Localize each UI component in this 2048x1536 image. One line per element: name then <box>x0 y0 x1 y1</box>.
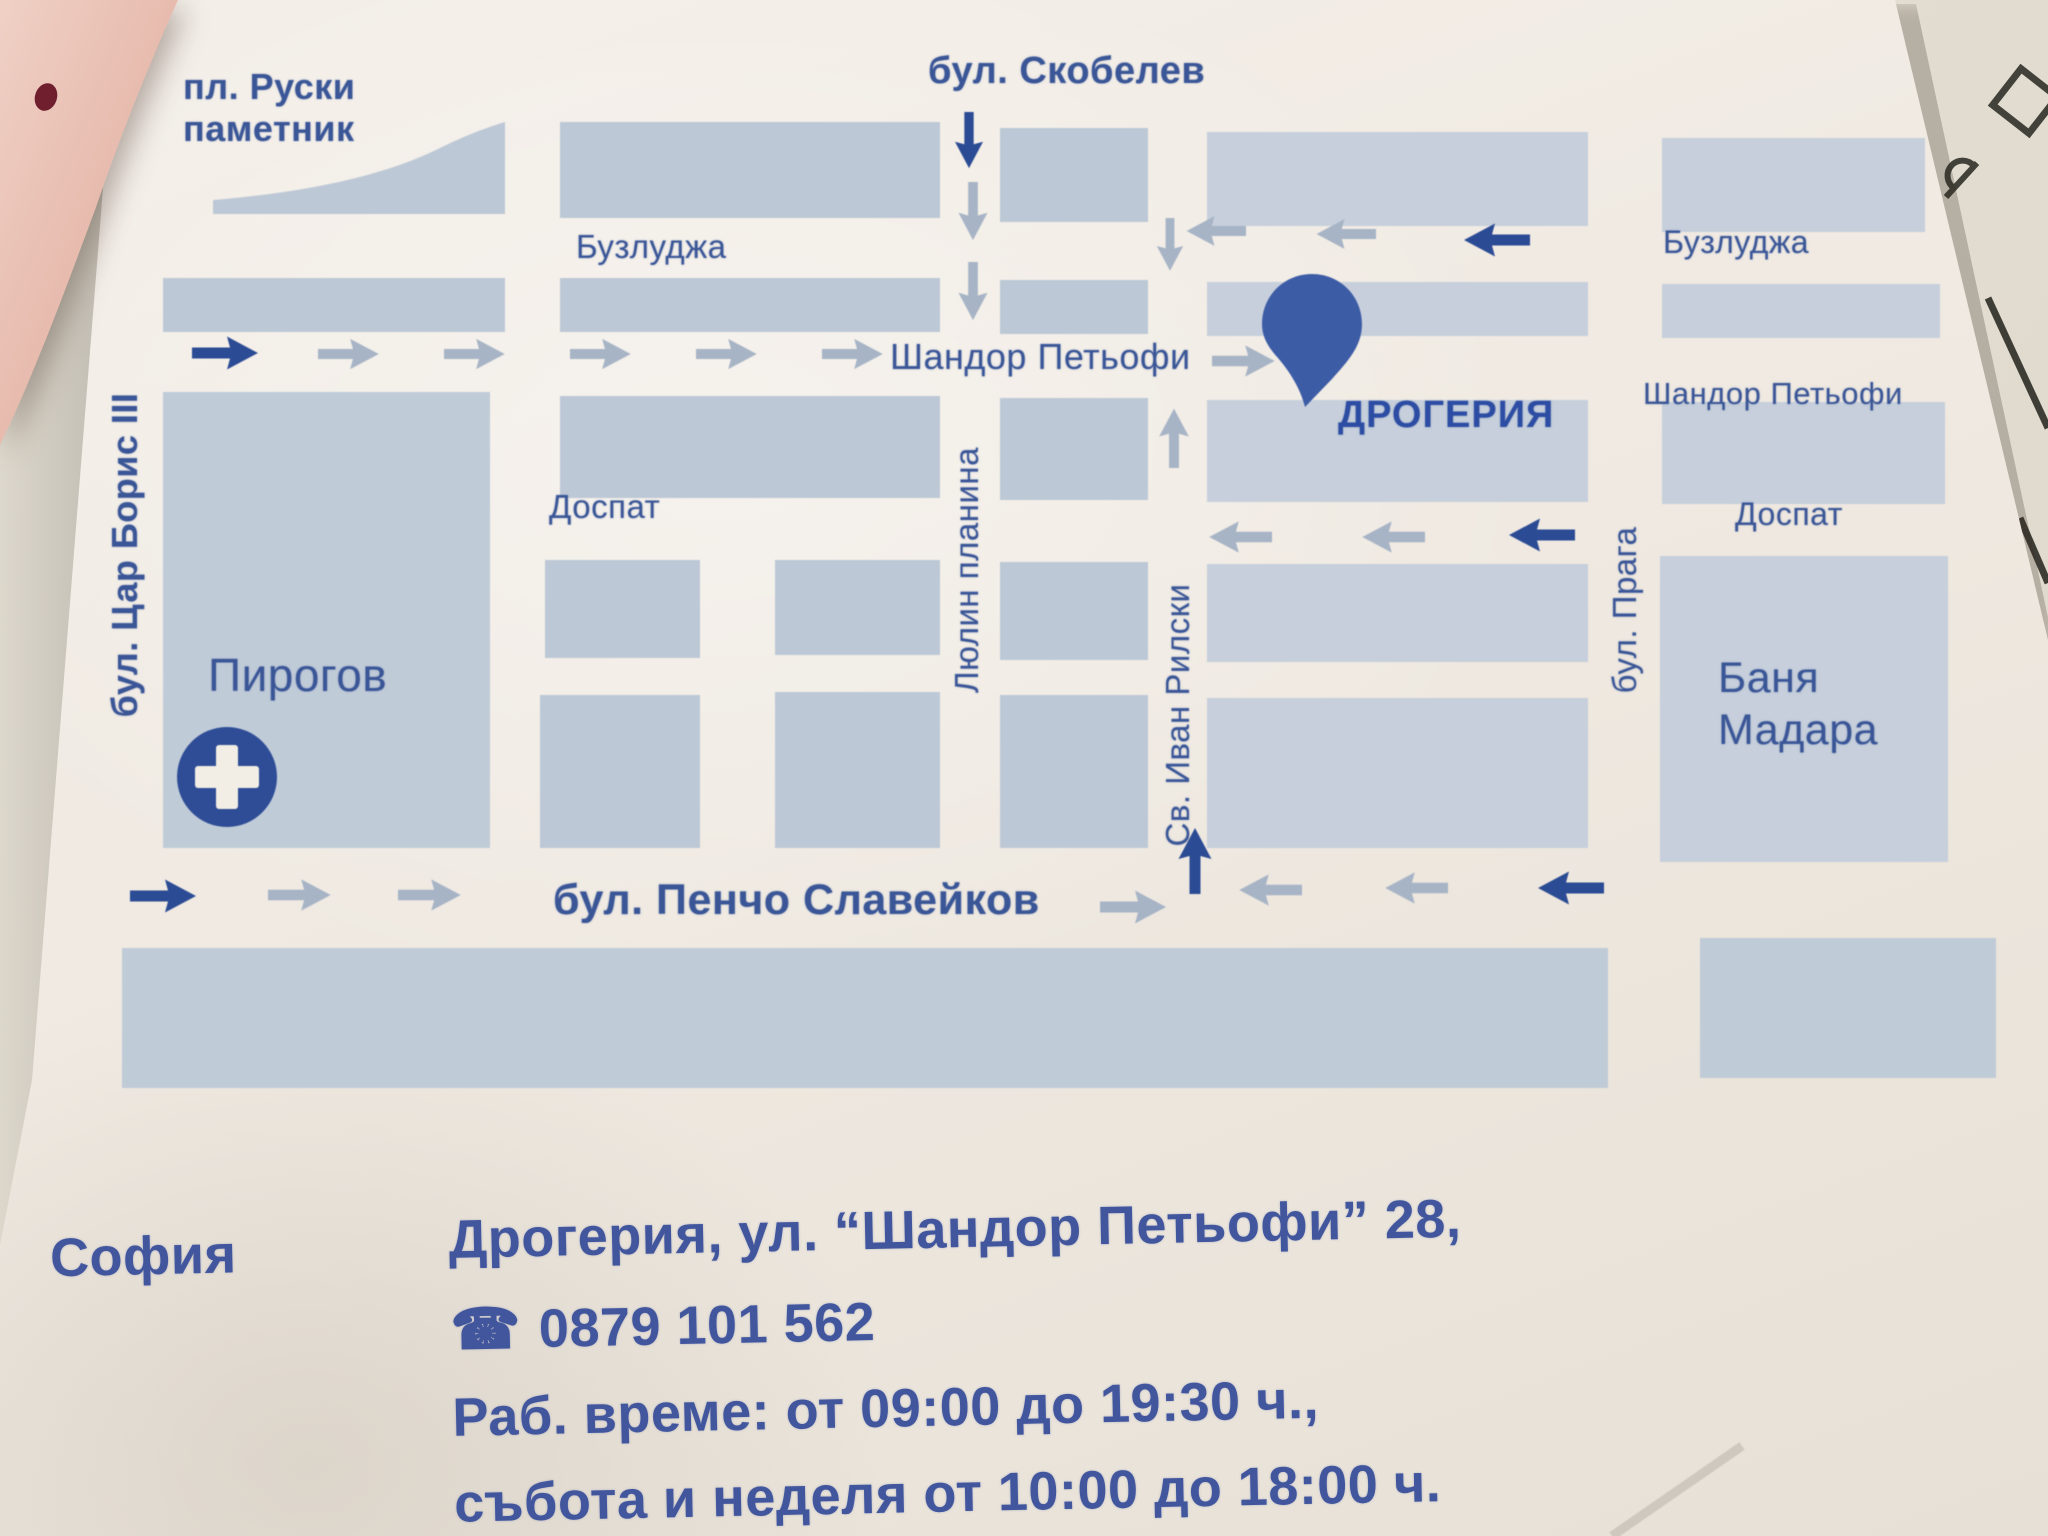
finger-overlay <box>0 0 2048 1536</box>
photo-canvas: пл. Руски паметник бул. Скобелев Бузлудж… <box>0 0 2048 1536</box>
finger-icon <box>0 0 178 445</box>
